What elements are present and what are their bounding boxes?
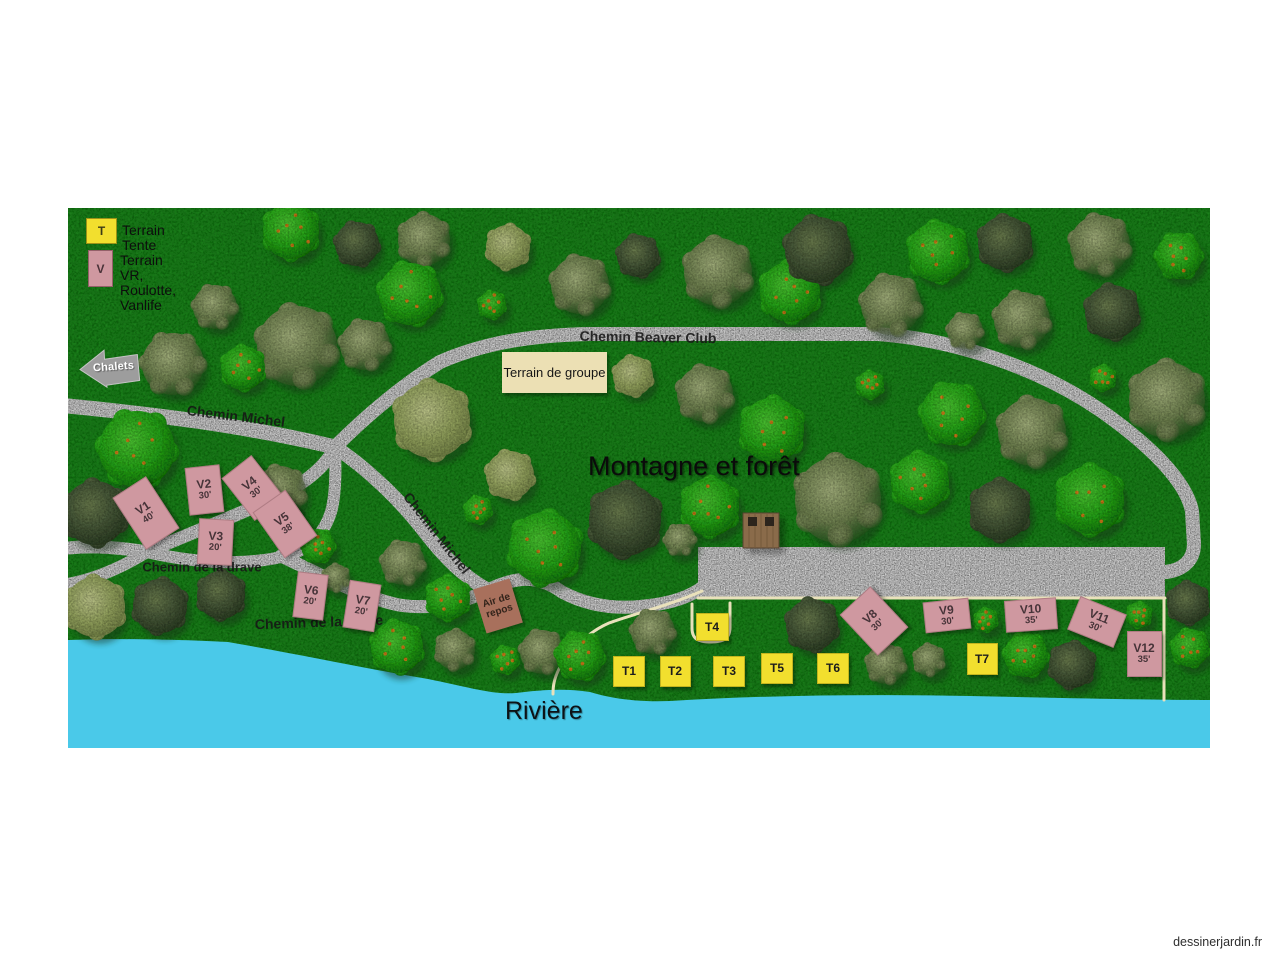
tent-site-T7[interactable]: T7 [967,643,998,675]
rv-site-V10[interactable]: V1035' [1004,597,1058,633]
mountain-forest-label: Montagne et forêt [588,451,800,482]
legend-rv-symbol: V [96,262,104,276]
river-label: Rivière [505,697,583,726]
legend-rv-label-line2: Vanlife [120,297,162,313]
legend-rv-chip: V [88,250,113,287]
tent-site-T6[interactable]: T6 [817,653,849,684]
chalets-arrow-sign[interactable]: Chalets [78,346,142,390]
legend-tent-symbol: T [98,224,105,238]
road-label: Chemin Beaver Club [579,328,716,346]
legend-rv-label: Terrain VR, Roulotte, Vanlife [120,253,176,313]
legend-rv-label-line1: Terrain VR, Roulotte, [120,252,176,298]
tent-site-T3[interactable]: T3 [713,656,745,687]
cabin-icon[interactable] [743,513,785,554]
campground-map: T Terrain Tente V Terrain VR, Roulotte, … [68,208,1210,748]
watermark: dessinerjardin.fr [1173,935,1262,949]
tent-site-T2[interactable]: T2 [660,656,691,687]
tent-site-T1[interactable]: T1 [613,656,645,687]
legend-tent-label: Terrain Tente [122,223,165,253]
tent-site-T4[interactable]: T4 [696,613,729,641]
rv-site-V9[interactable]: V930' [923,597,972,633]
rv-site-V12[interactable]: V1235' [1127,631,1162,677]
group-area-label: Terrain de groupe [504,365,606,380]
legend-tent-chip: T [86,218,117,244]
tent-site-T5[interactable]: T5 [761,653,793,684]
rv-site-V6[interactable]: V620' [292,571,328,620]
gravel-parking-area [698,547,1165,598]
group-area-sign[interactable]: Terrain de groupe [502,352,607,393]
rv-site-V3[interactable]: V320' [196,518,233,566]
rv-site-V2[interactable]: V230' [184,464,224,515]
